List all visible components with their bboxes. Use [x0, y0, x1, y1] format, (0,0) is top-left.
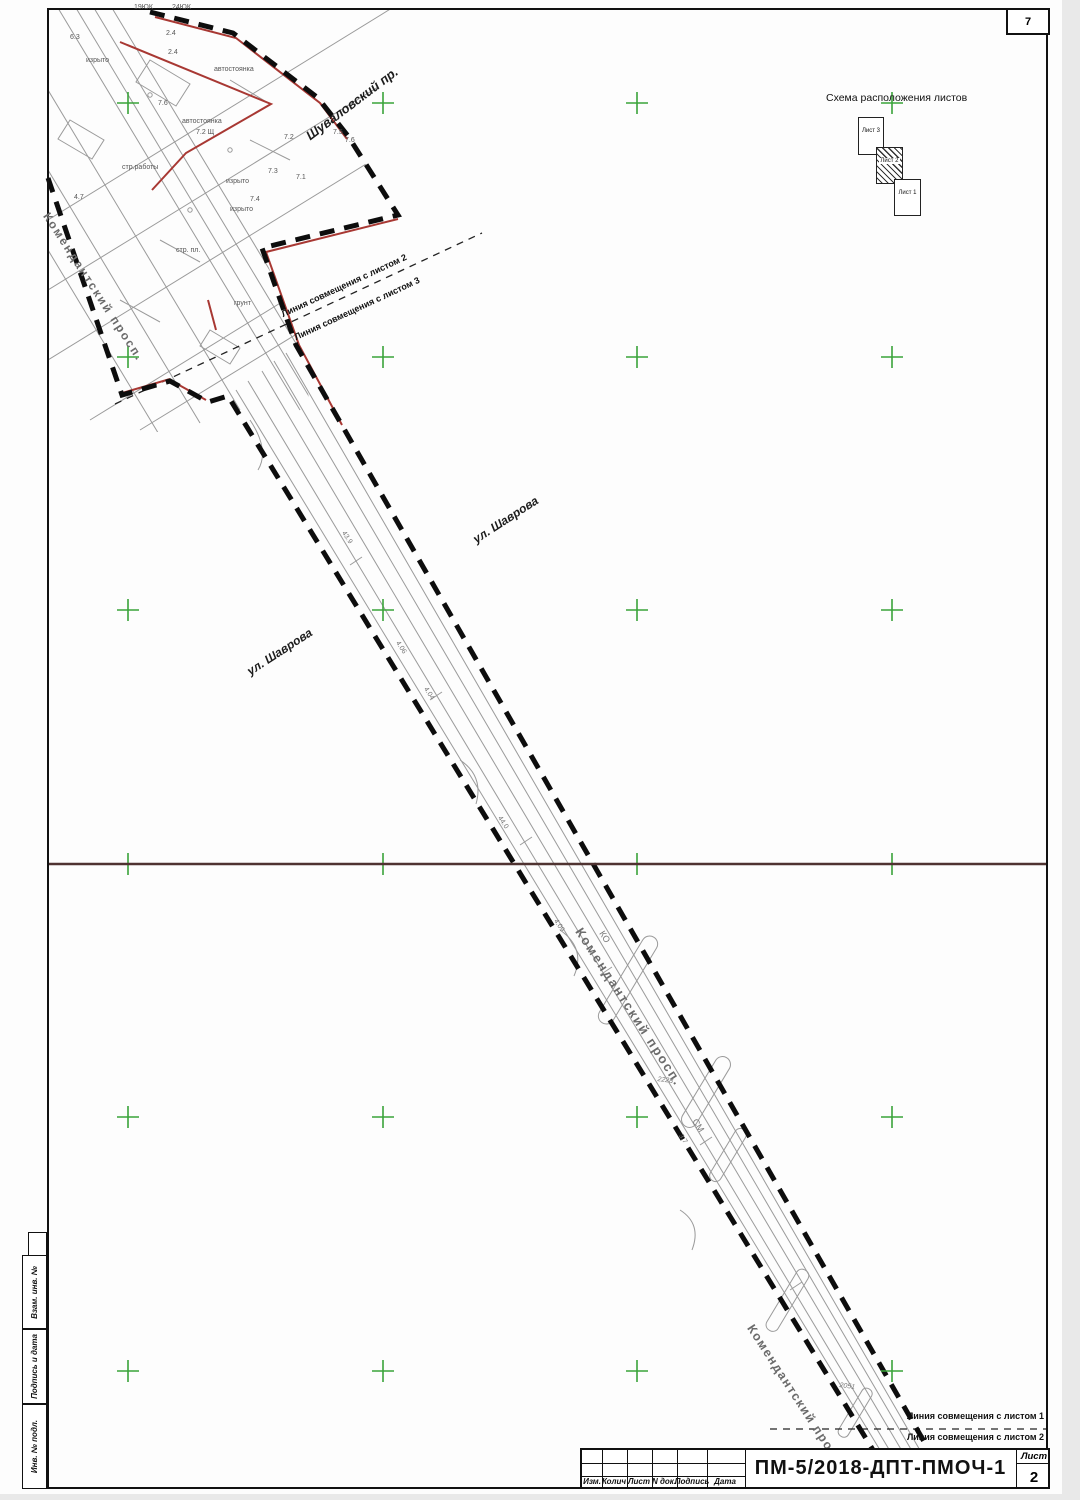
- side-cell-inv-label: Инв. № подл.: [30, 1420, 39, 1473]
- side-cell-podpis-label: Подпись и дата: [30, 1334, 39, 1399]
- topo-label: 7.1: [296, 174, 306, 181]
- corner-number: 7: [1025, 16, 1031, 28]
- topo-label: 7.3: [268, 168, 278, 175]
- schema-title: Схема расположения листов: [826, 92, 967, 104]
- side-cell-vzam: Взам. инв. №: [22, 1255, 47, 1329]
- stamp-col-data: Дата: [714, 1477, 736, 1486]
- stamp-col-podpis: Подпись: [675, 1477, 710, 1486]
- side-cell-vzam-label: Взам. инв. №: [30, 1266, 39, 1319]
- topo-label: 7.2 Щ: [196, 129, 214, 136]
- match-line-label-bottom-2: Линия совмещения с листом 2: [907, 1432, 1044, 1442]
- title-block: Изм. Колич Лист N док. Подпись Дата ПМ-5…: [580, 1448, 1050, 1489]
- side-cell-podpis: Подпись и дата: [22, 1329, 47, 1404]
- stamp-col-ndok: N док.: [652, 1477, 676, 1486]
- topo-label: автостоянка: [214, 66, 254, 73]
- schema-sheet-1-label: Лист 1: [897, 190, 917, 196]
- topo-label: 24ЮК: [172, 4, 191, 11]
- schema-sheet-3-label: Лист 3: [861, 128, 881, 134]
- topo-label: 7.2: [284, 134, 294, 141]
- topo-label: стр. пл.: [176, 247, 200, 254]
- corner-number-box: 7: [1006, 8, 1050, 35]
- topo-label: 2.4: [168, 49, 178, 56]
- topo-label: 2.4: [166, 30, 176, 37]
- topo-label: стр.работы: [122, 164, 158, 171]
- side-column-tab: [28, 1232, 47, 1256]
- match-line-label-bottom-1: Линия совмещения с листом 1: [907, 1411, 1044, 1421]
- document-code: ПМ-5/2018-ДПТ-ПМОЧ-1: [745, 1450, 1016, 1487]
- stamp-col-izm: Изм.: [583, 1477, 601, 1486]
- sheet-word: Лист: [1016, 1450, 1052, 1463]
- drawing-sheet: { "sheet": { "corner_number": "7", "stam…: [0, 0, 1080, 1500]
- topo-label: 7.4: [250, 196, 260, 203]
- schema-sheet-1: Лист 1: [894, 179, 921, 216]
- topo-label: автостоянка: [182, 118, 222, 125]
- sheet-number: 2: [1016, 1464, 1052, 1490]
- stamp-col-kolich: Колич: [602, 1477, 626, 1486]
- sheet-frame: [47, 8, 1048, 1489]
- topo-label: 7.6: [158, 100, 168, 107]
- topo-label: изрыто: [226, 178, 249, 185]
- topo-label: 7.5: [333, 129, 343, 136]
- stamp-col-list: Лист: [628, 1477, 650, 1486]
- topo-label: грунт: [234, 300, 251, 307]
- schema-sheet-2-label: Лист 2: [879, 158, 899, 164]
- topo-label: 19ЮК: [134, 4, 153, 11]
- topo-label: 7.6: [345, 137, 355, 144]
- topo-label: изрыто: [86, 57, 109, 64]
- topo-label: 4.7: [74, 194, 84, 201]
- side-cell-inv: Инв. № подл.: [22, 1404, 47, 1489]
- topo-label: 6.3: [70, 34, 80, 41]
- topo-label: изрыто: [230, 206, 253, 213]
